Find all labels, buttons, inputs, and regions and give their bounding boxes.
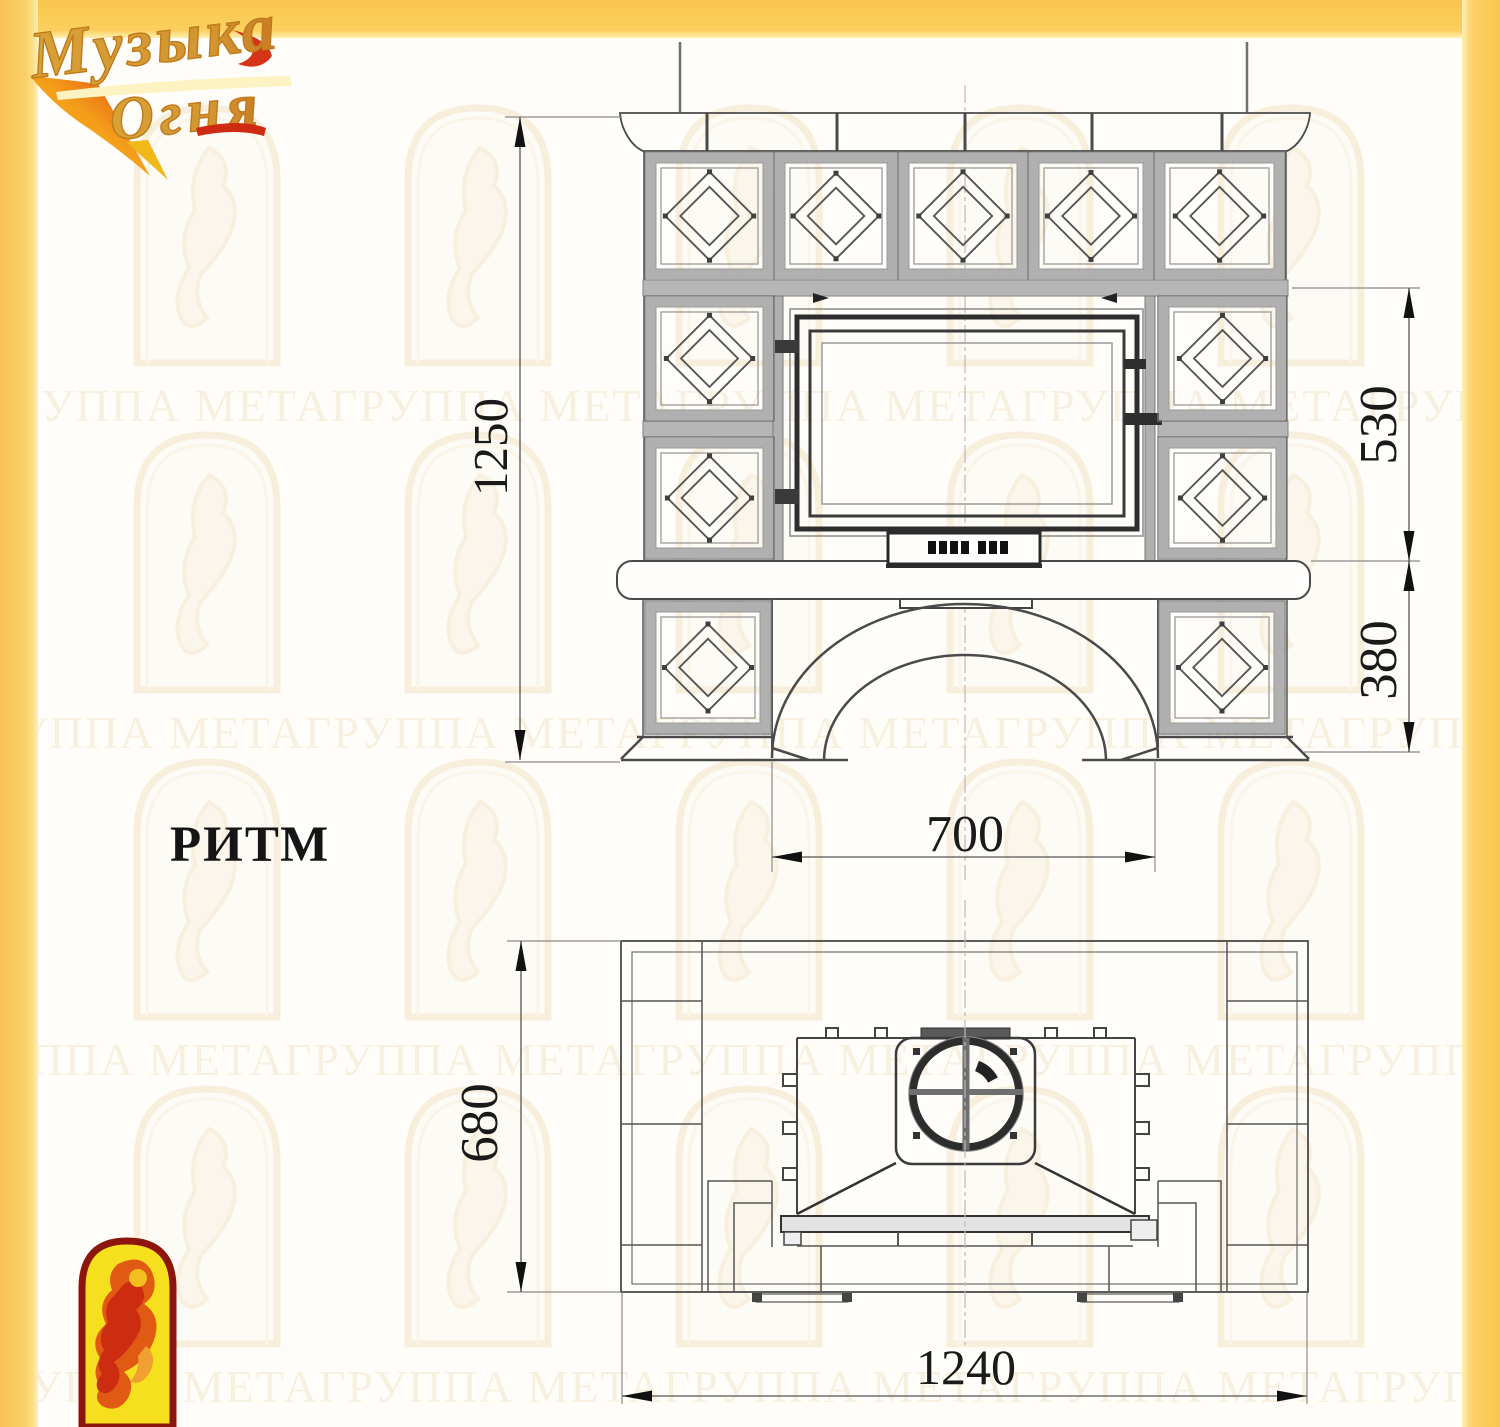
svg-text:1240: 1240 [916, 1339, 1016, 1395]
svg-text:530: 530 [1350, 385, 1408, 465]
svg-text:РИТМ: РИТМ [170, 817, 330, 873]
svg-text:700: 700 [926, 806, 1004, 863]
svg-text:680: 680 [451, 1083, 509, 1163]
svg-text:1250: 1250 [463, 398, 518, 496]
svg-text:380: 380 [1350, 620, 1408, 700]
